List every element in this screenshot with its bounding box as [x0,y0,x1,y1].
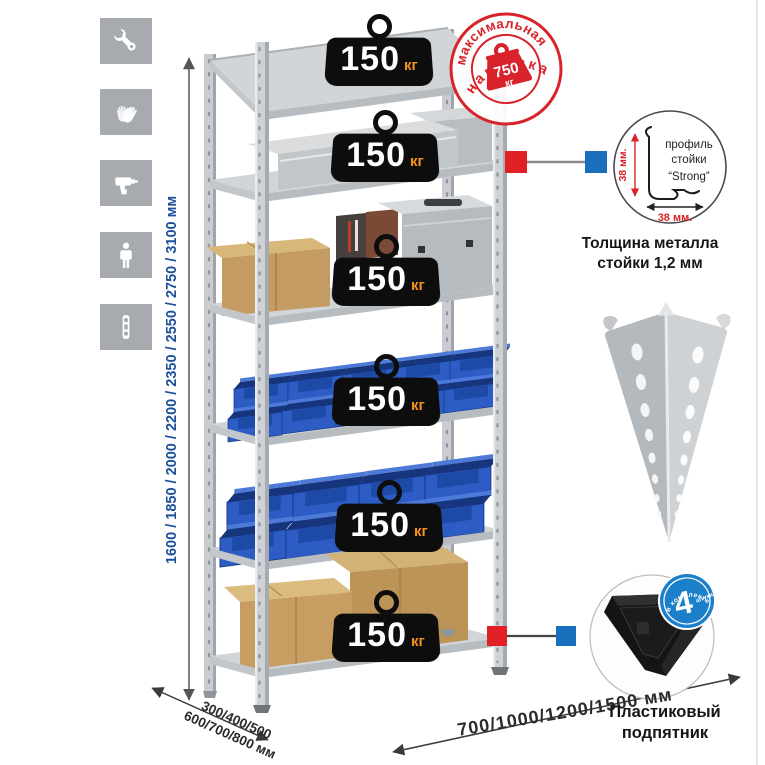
shelf5-unit: кг [414,523,428,540]
foot-callout-connector [487,626,576,646]
shelf4-capacity: 150 [347,380,407,418]
shelf6-unit: кг [411,633,425,650]
shelf1-weight: 150кг [324,14,434,86]
corner-post-image [603,302,730,542]
profile-caption-line1: Толщина металла [570,234,730,254]
rack-foot-front-left [253,705,271,713]
shelf5-capacity: 150 [350,506,410,544]
shelf4-weight: 150кг [331,354,441,426]
foot-caption-line1: Пластиковый [585,702,745,723]
profile-callout-connector [505,151,607,173]
marker-blue-top [585,151,607,173]
marker-blue-bottom [556,626,576,646]
shelf6-capacity: 150 [347,616,407,654]
profile-detail: 38 мм. 38 мм. профиль стойки “Strong” [614,111,726,224]
shelf6-weight: 150кг [331,590,441,662]
shelf2-weight: 150кг [330,110,440,182]
shelf3-weight: 150кг [331,234,441,306]
profile-label-3: “Strong” [668,171,710,183]
height-dimension-label: 1600 / 1850 / 2000 / 2200 / 2350 / 2550 … [164,165,180,595]
shelf4-unit: кг [411,397,425,414]
profile-caption: Толщина металла стойки 1,2 мм [570,234,730,274]
profile-dim-vertical: 38 мм. [617,148,629,181]
shelf3-capacity: 150 [347,260,407,298]
foot-caption-line2: подпятник [585,723,745,744]
foot-caption: Пластиковый подпятник [585,702,745,744]
shelf5-weight: 150кг [334,480,444,552]
marker-red-bottom [487,626,507,646]
profile-label-1: профиль [665,139,713,151]
shelf2-capacity: 150 [346,136,406,174]
shelf1-unit: кг [404,57,418,74]
profile-dim-horizontal: 38 мм. [658,212,693,224]
shelf2-unit: кг [410,153,424,170]
marker-red-top [505,151,527,173]
shelf1-capacity: 150 [340,40,400,78]
product-infographic: 38 мм. 38 мм. профиль стойки “Strong” [0,0,765,765]
shelf3-unit: кг [411,277,425,294]
rack-foot-front-right [491,667,509,675]
profile-label-2: стойки [671,154,706,166]
profile-caption-line2: стойки 1,2 мм [570,254,730,274]
